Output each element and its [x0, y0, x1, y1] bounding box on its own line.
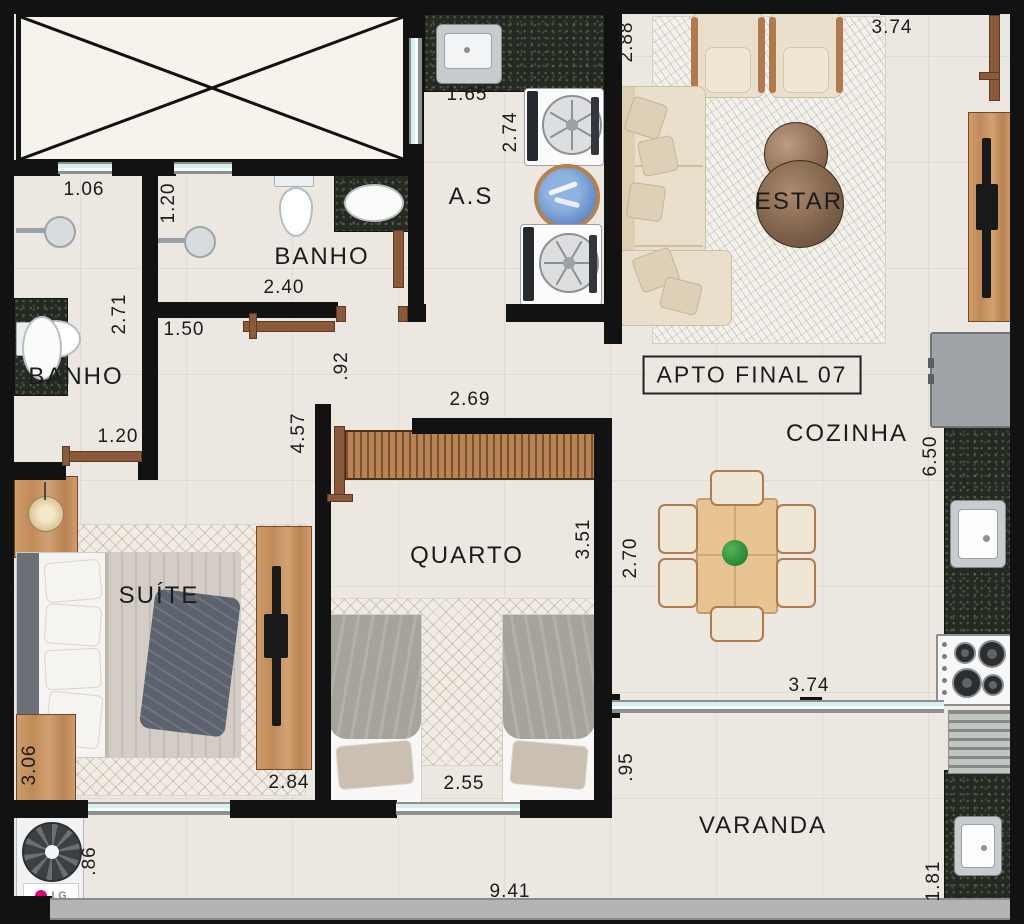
- cooktop-knob: [942, 666, 947, 671]
- banho-left-door-handle: [62, 446, 70, 466]
- quarto-door: [334, 426, 345, 502]
- kitchen-sink-drain-icon: [983, 535, 990, 542]
- quarto-bed: [328, 614, 422, 804]
- dim-label: 1.81: [923, 861, 945, 902]
- washer-bottom: [520, 224, 602, 306]
- wall-suite-bottom-r: [230, 800, 331, 818]
- washer-top-lid-bar: [591, 97, 599, 155]
- banho-left-door: [66, 451, 142, 462]
- washer-bottom-panel: [523, 227, 534, 301]
- clothes-fold: [548, 181, 578, 196]
- clothes-fold: [554, 197, 580, 209]
- dim-label: .95: [616, 752, 638, 781]
- quarto-wardrobe: [344, 430, 602, 480]
- bed-pillow: [43, 559, 102, 604]
- dim-label: 1.65: [447, 84, 488, 106]
- laundry-sink-drain-icon: [464, 47, 470, 53]
- quarto-blanket: [503, 615, 595, 739]
- bed-pillow: [509, 740, 589, 790]
- quarto-door-handle: [327, 494, 353, 502]
- sofa-pillow: [626, 182, 667, 223]
- hall-door-handle: [249, 313, 257, 339]
- dim-label: 2.88: [616, 22, 638, 63]
- quarto-window: [396, 802, 520, 815]
- dim-label: 1.06: [64, 179, 105, 201]
- servico-window: [409, 38, 422, 144]
- cooktop: [936, 634, 1012, 706]
- room-label-suite: SUÍTE: [119, 582, 200, 610]
- dim-label: 2.69: [450, 389, 491, 411]
- fridge-handle: [928, 374, 934, 384]
- shaft-box: [16, 12, 408, 164]
- armchair-cushion: [705, 47, 751, 93]
- room-label-cozinha: COZINHA: [786, 420, 908, 448]
- dim-label: 2.55: [444, 773, 485, 795]
- wall-banho-left-bottom: [0, 462, 66, 480]
- dim-label: 2.40: [264, 277, 305, 299]
- basin-top-bath: [344, 184, 404, 222]
- cooktop-knob: [942, 678, 947, 683]
- suite-lamp-icon: [28, 496, 64, 532]
- shower-head-top-icon: [184, 226, 216, 258]
- cooktop-knob: [942, 690, 947, 695]
- washer-bottom-lid-bar: [589, 235, 597, 293]
- room-label-estar: ESTAR: [755, 188, 843, 216]
- cooktop-knob: [942, 642, 947, 647]
- dining-chair: [658, 558, 698, 608]
- dining-chair: [658, 504, 698, 554]
- room-label-banho-left: BANHO: [28, 363, 123, 391]
- wall-servico-bottom: [506, 304, 620, 322]
- armchair: [770, 12, 842, 98]
- dim-label: .92: [331, 351, 353, 380]
- varanda-sink-basin: [961, 824, 995, 868]
- suite-throw: [139, 588, 241, 737]
- washer-top-panel: [527, 91, 538, 161]
- banho-top-door: [393, 230, 404, 288]
- dim-label: 2.84: [269, 772, 310, 794]
- floor-plan: LG BANHO BANHO A.S ESTAR COZINH: [0, 0, 1024, 924]
- armchair-arm: [836, 17, 843, 93]
- sofa-pillow: [637, 135, 680, 178]
- burner: [978, 640, 1006, 668]
- dim-label: 3.74: [872, 17, 913, 39]
- laundry-sink: [436, 24, 502, 84]
- tv-living-body: [976, 184, 998, 230]
- wall-quarto-left: [315, 404, 331, 818]
- varanda-sink-drain-icon: [981, 845, 987, 851]
- bath-sill-window: [174, 162, 234, 174]
- quarto-bed: [502, 614, 596, 804]
- laundry-basket: [534, 164, 600, 230]
- washer-top: [524, 88, 604, 166]
- wall-suite-bottom-l: [0, 800, 88, 818]
- entry-door-handle: [979, 72, 1000, 80]
- bed-pillow: [335, 740, 415, 790]
- dim-label: 1.50: [164, 319, 205, 341]
- dim-label: 4.57: [288, 413, 310, 454]
- kitchen-sink: [950, 500, 1006, 568]
- cooktop-knob: [942, 654, 947, 659]
- dim-label: .86: [79, 846, 101, 875]
- suite-window: [88, 802, 230, 815]
- wall-banho-top-bottom: [142, 302, 338, 318]
- kitchen-sink-basin: [958, 509, 998, 559]
- dim-label: 2.71: [109, 294, 131, 335]
- room-label-quarto: QUARTO: [410, 542, 524, 570]
- servico-door-jamb: [398, 306, 408, 322]
- varanda-sliding-door: [612, 700, 944, 713]
- varanda-sink: [954, 816, 1002, 876]
- wall-bath-divider: [142, 160, 158, 480]
- suite-lamp-stem: [44, 482, 46, 500]
- wall-quarto-bottom-r: [520, 800, 612, 818]
- unit-label: APTO FINAL 07: [643, 356, 862, 395]
- wall-top: [0, 0, 1024, 14]
- armchair-arm: [691, 17, 698, 93]
- armchair: [692, 12, 764, 98]
- dim-label: 1.20: [158, 183, 180, 224]
- dim-label: 2.70: [620, 538, 642, 579]
- burner: [982, 674, 1004, 696]
- dim-label: 9.41: [490, 881, 531, 903]
- armchair-cushion: [783, 47, 829, 93]
- wall-right: [1010, 0, 1024, 924]
- dim-label: 3.74: [789, 675, 830, 697]
- burner: [954, 642, 976, 664]
- sofa-seam: [635, 245, 703, 247]
- wall-quarto-bottom-l: [331, 800, 397, 818]
- floor-drain-grate: [948, 710, 1012, 774]
- wall-quarto-right: [594, 418, 612, 818]
- bed-pillow: [44, 603, 103, 647]
- dining-chair: [776, 504, 816, 554]
- wall-banho-left-post: [138, 462, 158, 480]
- servico-door-jamb: [336, 306, 346, 322]
- shower-head-left-icon: [44, 216, 76, 248]
- burner: [952, 668, 982, 698]
- armchair-arm: [769, 17, 776, 93]
- wall-below-shaft: [14, 160, 60, 176]
- dining-chair: [710, 470, 764, 506]
- wall-quarto-top: [412, 418, 612, 434]
- tv-suite-body: [264, 614, 288, 658]
- shaft-x-icon: [21, 17, 403, 159]
- table-plant-icon: [722, 540, 748, 566]
- fridge-handle: [928, 358, 934, 368]
- wall-servico-bottom-tab: [408, 304, 426, 322]
- dim-label: 1.20: [98, 426, 139, 448]
- room-label-varanda: VARANDA: [699, 812, 827, 840]
- entry-door: [989, 15, 1000, 101]
- quarto-blanket: [329, 615, 421, 739]
- dim-label: 6.50: [920, 436, 942, 477]
- dim-label: 3.51: [573, 519, 595, 560]
- bath-sill-window: [58, 162, 114, 174]
- wall-below-shaft: [232, 160, 410, 176]
- dining-chair: [776, 558, 816, 608]
- wall-corner-bl: [0, 896, 52, 924]
- dim-label: 3.06: [19, 745, 41, 786]
- bed-pillow: [44, 648, 102, 691]
- room-label-servico: A.S: [449, 183, 494, 211]
- dim-label: 2.74: [500, 112, 522, 153]
- room-label-banho-top: BANHO: [274, 243, 369, 271]
- armchair-arm: [758, 17, 765, 93]
- fridge: [930, 332, 1012, 428]
- dining-chair: [710, 606, 764, 642]
- ac-fan-icon: [22, 822, 82, 882]
